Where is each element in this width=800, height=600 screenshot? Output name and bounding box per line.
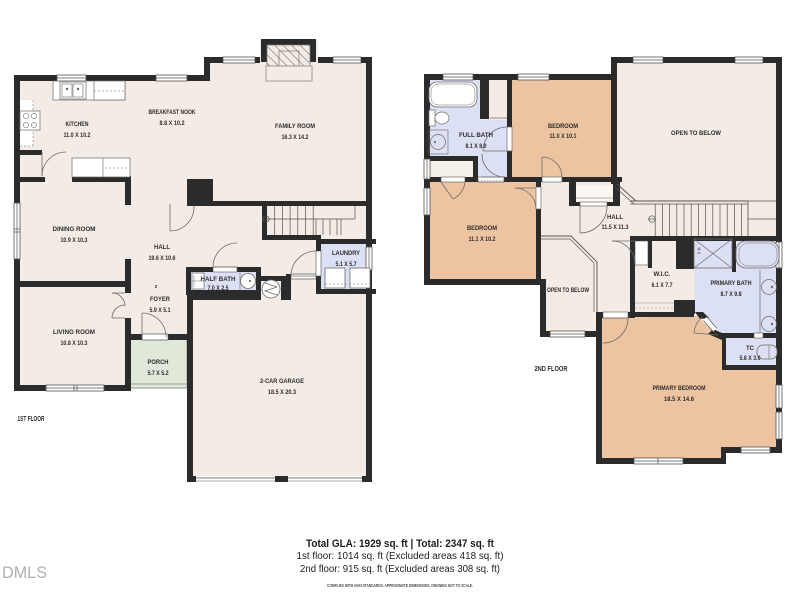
svg-text:BEDROOM: BEDROOM (467, 225, 497, 232)
svg-text:BEDROOM: BEDROOM (548, 123, 578, 130)
svg-text:11.5 X 11.3: 11.5 X 11.3 (602, 224, 629, 231)
svg-text:W.I.C.: W.I.C. (654, 271, 671, 278)
svg-text:5.1 X 5.7: 5.1 X 5.7 (336, 261, 357, 268)
svg-text:11.0 X 10.1: 11.0 X 10.1 (550, 133, 577, 140)
svg-text:8.1 X 8.0: 8.1 X 8.0 (466, 143, 487, 150)
svg-text:HALL: HALL (154, 244, 170, 251)
svg-text:19.6 X 10.6: 19.6 X 10.6 (149, 255, 176, 262)
svg-text:5.9 X 5.1: 5.9 X 5.1 (150, 307, 171, 314)
svg-text:OPEN TO BELOW: OPEN TO BELOW (547, 287, 590, 294)
svg-text:DMLS: DMLS (2, 563, 47, 582)
svg-text:7.0 X 2.5: 7.0 X 2.5 (208, 285, 229, 292)
svg-text:10.8 X 10.3: 10.8 X 10.3 (61, 340, 88, 347)
svg-text:FOYER: FOYER (150, 296, 170, 303)
svg-text:16.3 X 14.2: 16.3 X 14.2 (282, 134, 309, 141)
svg-text:6.1 X 7.7: 6.1 X 7.7 (652, 282, 673, 289)
svg-text:2nd floor: 915 sq. ft (Exclude: 2nd floor: 915 sq. ft (Excluded areas 30… (300, 564, 500, 575)
svg-text:8.7 X 9.8: 8.7 X 9.8 (721, 291, 742, 298)
svg-text:PRIMARY BATH: PRIMARY BATH (711, 280, 752, 287)
svg-text:KITCHEN: KITCHEN (66, 121, 89, 128)
svg-text:LAUNDRY: LAUNDRY (332, 250, 360, 257)
svg-text:FAMILY ROOM: FAMILY ROOM (275, 123, 315, 130)
svg-text:18.5 X 14.6: 18.5 X 14.6 (664, 396, 694, 403)
svg-text:LIVING ROOM: LIVING ROOM (53, 329, 95, 336)
svg-text:HALL: HALL (607, 214, 623, 221)
svg-text:1st floor: 1014 sq. ft (Exclud: 1st floor: 1014 sq. ft (Excluded areas 4… (297, 551, 504, 562)
svg-text:11.1 X 10.2: 11.1 X 10.2 (469, 236, 496, 243)
svg-text:1ST FLOOR: 1ST FLOOR (18, 416, 45, 423)
svg-text:Total GLA: 1929 sq. ft | Total: Total GLA: 1929 sq. ft | Total: 2347 sq.… (306, 538, 494, 550)
svg-text:8.8 X 10.2: 8.8 X 10.2 (160, 120, 185, 127)
svg-text:5.7 X 5.2: 5.7 X 5.2 (148, 370, 169, 377)
svg-text:5.8 X 3.0: 5.8 X 3.0 (740, 355, 761, 362)
svg-text:FULL BATH: FULL BATH (459, 132, 493, 139)
svg-text:HALF BATH: HALF BATH (201, 276, 236, 283)
svg-text:PORCH: PORCH (148, 359, 169, 366)
svg-text:COMPLIES WITH ANSI STANDARDS.: COMPLIES WITH ANSI STANDARDS. APPROXIMAT… (327, 583, 473, 588)
svg-text:2-CAR GARAGE: 2-CAR GARAGE (260, 378, 304, 385)
svg-text:11.0 X 10.2: 11.0 X 10.2 (64, 132, 91, 139)
svg-text:DINING ROOM: DINING ROOM (53, 226, 96, 233)
svg-text:PRIMARY BEDROOM: PRIMARY BEDROOM (653, 385, 706, 392)
svg-text:OPEN TO BELOW: OPEN TO BELOW (671, 130, 722, 137)
svg-text:10.9 X 10.3: 10.9 X 10.3 (61, 237, 88, 244)
svg-text:18.5 X 20.3: 18.5 X 20.3 (268, 389, 296, 396)
svg-text:TC: TC (746, 345, 754, 352)
svg-text:BREAKFAST NOOK: BREAKFAST NOOK (149, 109, 196, 116)
svg-text:2ND FLOOR: 2ND FLOOR (535, 366, 568, 373)
